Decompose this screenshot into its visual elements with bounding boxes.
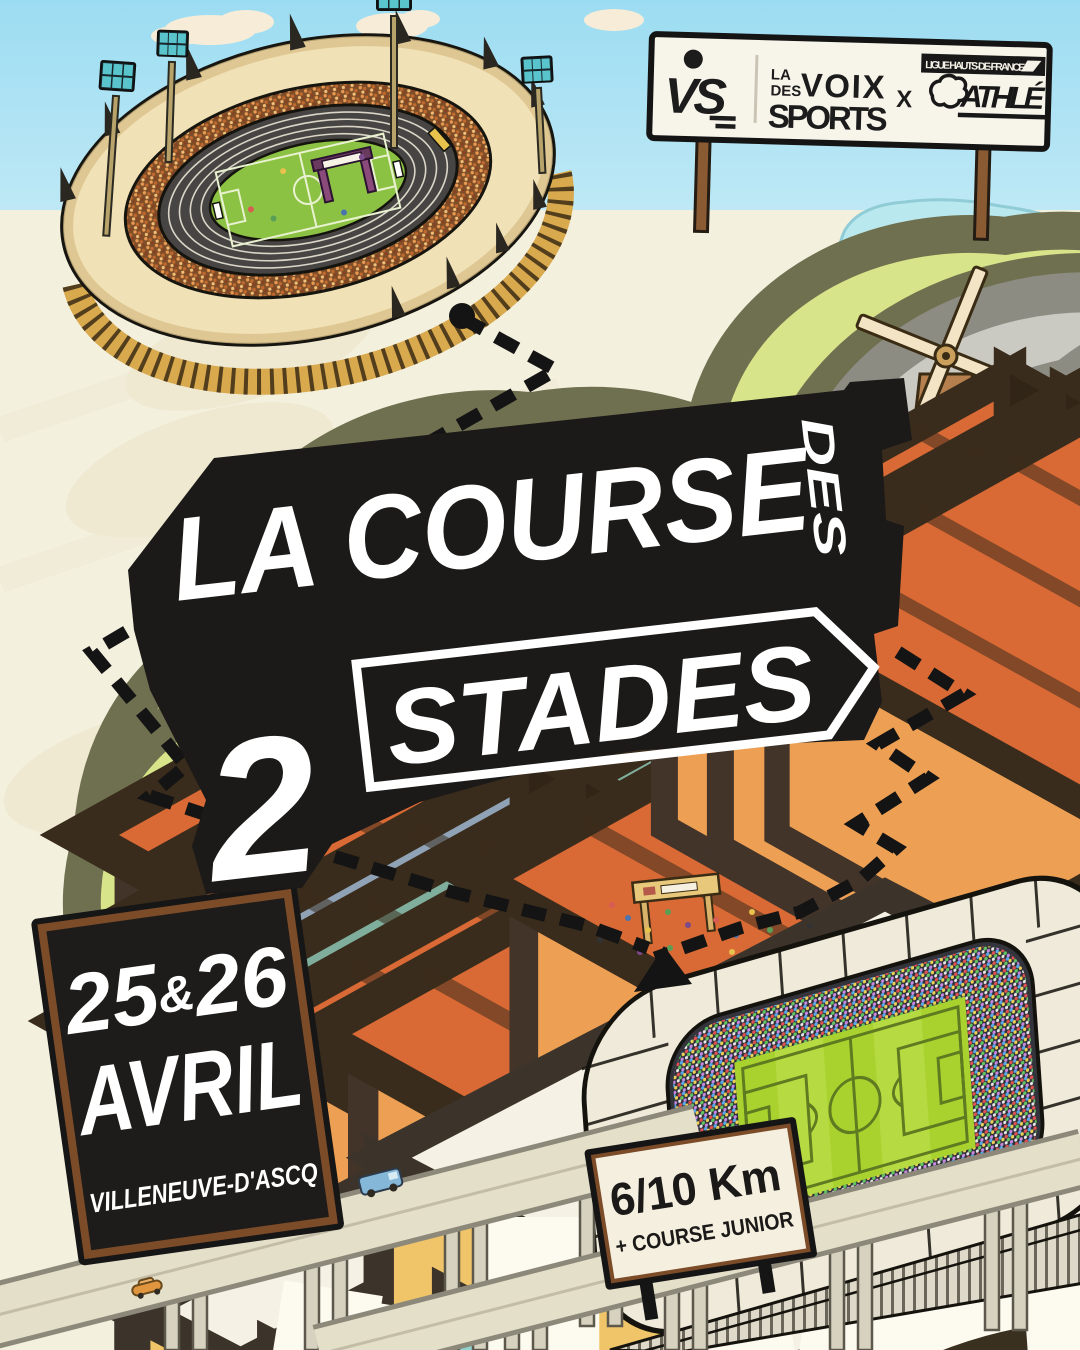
svg-text:ATHLÉ: ATHLÉ xyxy=(959,79,1046,116)
partner-separator: X xyxy=(896,86,913,113)
svg-text:SPORTS: SPORTS xyxy=(767,97,888,137)
svg-text:LA: LA xyxy=(771,66,792,84)
race-poster: VS LA DES VOIX SPORTS X LIGUE HAUTS-DE-F… xyxy=(0,0,1080,1350)
date-sign: 25&26 AVRIL VILLENEUVE-D'ASCQ xyxy=(34,886,341,1263)
